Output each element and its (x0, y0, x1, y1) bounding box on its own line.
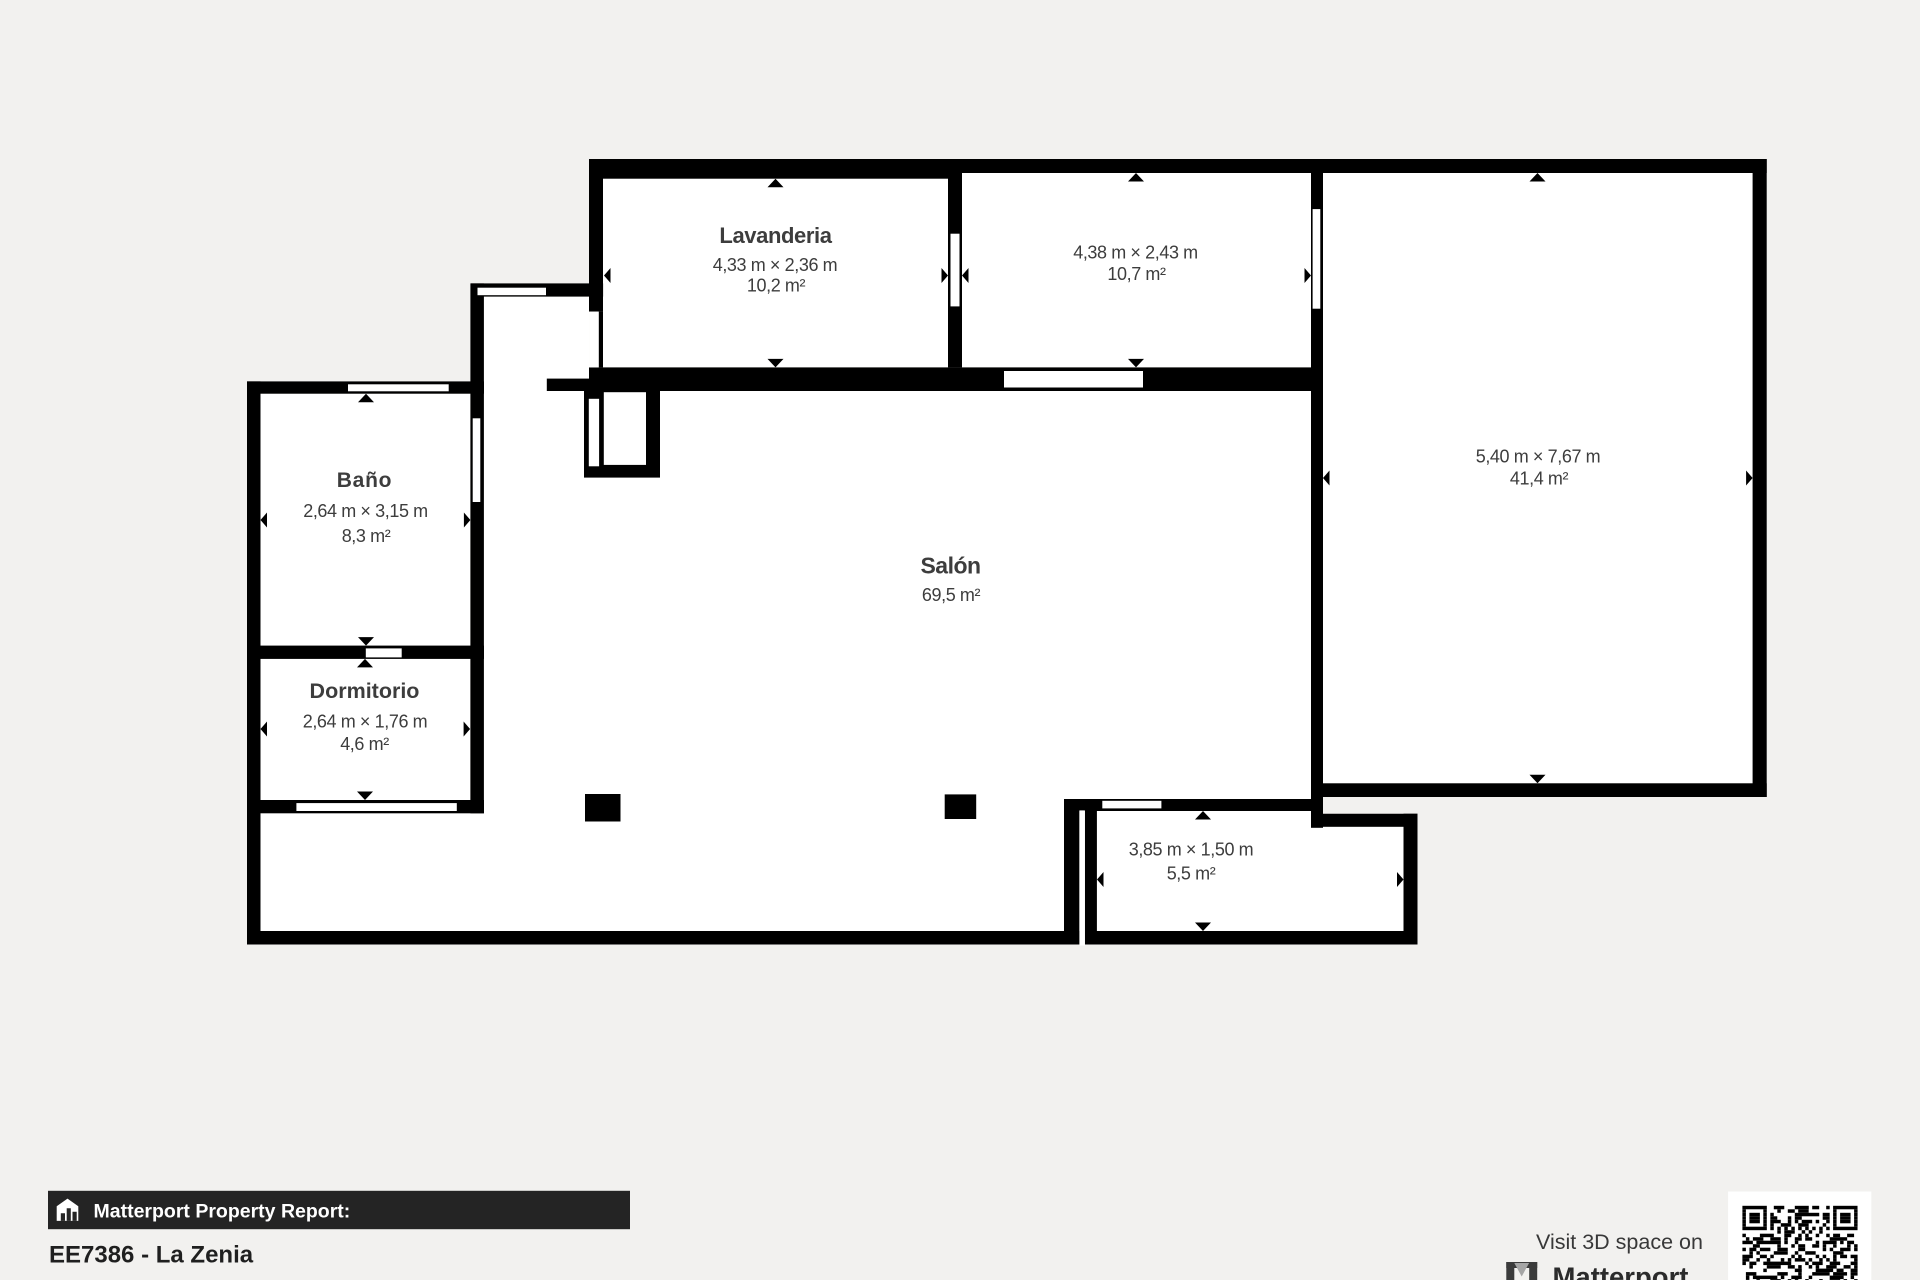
svg-text:2,64 m × 1,76 m: 2,64 m × 1,76 m (303, 712, 428, 732)
svg-text:2,64 m × 3,15 m: 2,64 m × 3,15 m (303, 501, 428, 521)
svg-text:3,85 m × 1,50 m: 3,85 m × 1,50 m (1129, 840, 1254, 860)
svg-text:EE7386 - La Zenia: EE7386 - La Zenia (49, 1241, 254, 1268)
svg-text:Baño: Baño (337, 469, 393, 492)
svg-text:41,4 m²: 41,4 m² (1510, 469, 1569, 489)
svg-text:10,7 m²: 10,7 m² (1107, 264, 1166, 284)
svg-text:69,5 m²: 69,5 m² (922, 585, 981, 605)
svg-text:Salón: Salón (920, 553, 980, 579)
svg-text:4,33 m × 2,36 m: 4,33 m × 2,36 m (713, 255, 838, 275)
svg-text:Matterport: Matterport (1553, 1262, 1689, 1280)
svg-text:Lavanderia: Lavanderia (719, 223, 832, 248)
svg-text:10,2 m²: 10,2 m² (747, 276, 806, 296)
svg-text:Visit 3D space on: Visit 3D space on (1536, 1230, 1703, 1254)
svg-text:4,6 m²: 4,6 m² (340, 734, 389, 754)
svg-text:5,40 m × 7,67 m: 5,40 m × 7,67 m (1476, 447, 1601, 467)
svg-text:Dormitorio: Dormitorio (310, 679, 420, 703)
svg-text:Matterport Property Report:: Matterport Property Report: (94, 1201, 351, 1223)
svg-text:5,5 m²: 5,5 m² (1167, 864, 1216, 884)
svg-text:4,38 m × 2,43 m: 4,38 m × 2,43 m (1073, 243, 1198, 263)
svg-text:8,3 m²: 8,3 m² (342, 526, 391, 546)
